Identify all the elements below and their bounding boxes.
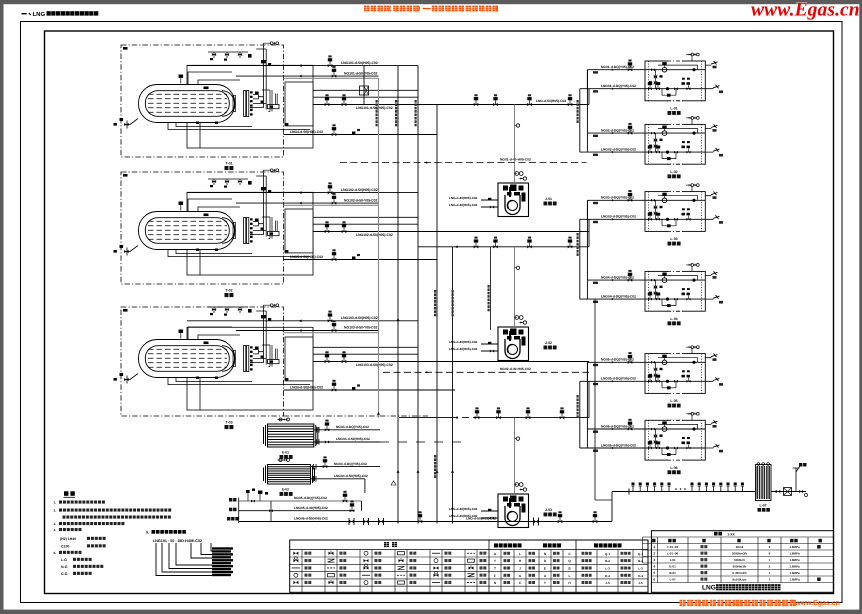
svg-text:E-02: E-02: [282, 488, 289, 492]
svg-text:C100: C100: [61, 544, 69, 548]
svg-text:LNG6-d-50(H05)-C02: LNG6-d-50(H05)-C02: [290, 385, 323, 389]
svg-text:LNG-d-40(H05)-C02: LNG-d-40(H05)-C02: [449, 514, 478, 518]
svg-text:NG02-d-DQ(Y05)-C02: NG02-d-DQ(Y05)-C02: [601, 128, 634, 132]
svg-text:LNG04-d-DQ(Y05)-C02: LNG04-d-DQ(Y05)-C02: [601, 294, 636, 298]
svg-text:LNG06-d-50(H05)-C02: LNG06-d-50(H05)-C02: [294, 517, 328, 521]
svg-text:C-G: C-G: [61, 572, 68, 576]
svg-text:LNG: LNG: [33, 11, 46, 18]
svg-text:L-G: L-G: [61, 558, 67, 562]
svg-text:NG103-d-50-Y05-C02: NG103-d-50-Y05-C02: [344, 326, 377, 330]
svg-text:LNG-d-40(H05)-C02: LNG-d-40(H05)-C02: [449, 196, 478, 200]
svg-text:4.: 4.: [54, 528, 57, 532]
svg-text:2.: 2.: [54, 509, 57, 513]
svg-text:L-01: L-01: [670, 107, 677, 111]
svg-text:Q-1: Q-1: [605, 552, 610, 556]
svg-text:LNG101 - 50 - DID-H406-C02: LNG101 - 50 - DID-H406-C02: [153, 539, 202, 543]
svg-text:L-04: L-04: [670, 317, 677, 321]
svg-text:J-03: J-03: [545, 508, 552, 512]
svg-text:LNG103-d-50(H05)-C02: LNG103-d-50(H05)-C02: [341, 316, 378, 320]
svg-text:T-03: T-03: [225, 421, 232, 425]
svg-text:LNG4-d-50(H05)-C02: LNG4-d-50(H05)-C02: [290, 130, 323, 134]
svg-text:L-3: L-3: [605, 567, 610, 571]
svg-text:L: L: [519, 552, 521, 556]
svg-text:LNG5-d-50(H05)-C02: LNG5-d-50(H05)-C02: [290, 255, 323, 259]
svg-text:J-01: J-01: [670, 558, 676, 562]
svg-text:LNG04-d-50(H05)-C02: LNG04-d-50(H05)-C02: [334, 474, 368, 478]
svg-text:1.6MPa: 1.6MPa: [789, 578, 800, 582]
svg-text:L-07: L-07: [670, 578, 677, 582]
svg-text:LNG06-d-DQ(Y05)-C02: LNG06-d-DQ(Y05)-C02: [601, 443, 636, 447]
svg-text:LNG-d-40(H05)-C02: LNG-d-40(H05)-C02: [449, 507, 478, 511]
svg-text:L: L: [569, 574, 571, 578]
svg-text:LNG101-d-50(H05)-C02: LNG101-d-50(H05)-C02: [341, 61, 378, 65]
svg-text:5.: 5.: [146, 531, 149, 535]
svg-text:L-01~06: L-01~06: [667, 552, 679, 556]
svg-text:LNG-d-40(H05)-C02: LNG-d-40(H05)-C02: [449, 203, 478, 207]
svg-text:4: 4: [653, 565, 655, 569]
svg-text:8x100L/pc: 8x100L/pc: [733, 578, 747, 582]
svg-text:NG01-d-40-H05-C02: NG01-d-40-H05-C02: [500, 157, 531, 161]
svg-text:LNG: LNG: [702, 585, 716, 592]
svg-text:1.6MPa: 1.6MPa: [789, 565, 800, 569]
svg-text:LNG-d-40(H05)-C02: LNG-d-40(H05)-C02: [449, 347, 478, 351]
svg-text:(H2) 1H40: (H2) 1H40: [60, 537, 76, 541]
svg-text:3: 3: [653, 558, 655, 562]
svg-text:www.Egas.cn: www.Egas.cn: [751, 0, 860, 21]
svg-text:1.6MPa: 1.6MPa: [789, 558, 800, 562]
svg-text:LNG02-d-DQ(Y05)-C02: LNG02-d-DQ(Y05)-C02: [601, 147, 636, 151]
svg-text:NG04-d-DQ(Y05)-C02: NG04-d-DQ(Y05)-C02: [601, 275, 634, 279]
svg-text:www.Egas.cn: www.Egas.cn: [794, 600, 840, 607]
svg-text:E-01: E-01: [669, 565, 676, 569]
svg-text:F: F: [494, 574, 496, 578]
svg-text:B-2: B-2: [605, 559, 610, 563]
svg-text:LNG102-d-50(H05)-C02: LNG102-d-50(H05)-C02: [356, 233, 393, 237]
svg-text:NG02-d-40-H05-C02: NG02-d-40-H05-C02: [500, 367, 531, 371]
svg-text:600Nm3/h: 600Nm3/h: [733, 565, 747, 569]
svg-text:L-3: L-3: [638, 567, 643, 571]
svg-text:2: 2: [653, 552, 655, 556]
svg-text:E: E: [544, 567, 546, 571]
svg-text:L-03: L-03: [670, 237, 677, 241]
svg-text:NG06-d-DQ(Y05)-C02: NG06-d-DQ(Y05)-C02: [601, 424, 634, 428]
svg-text:T-01: T-01: [225, 162, 232, 166]
svg-text:1.6MPa: 1.6MPa: [789, 571, 800, 575]
svg-text:LNG03-d-50(H05)-C02: LNG03-d-50(H05)-C02: [336, 437, 370, 441]
svg-text:LNG05-d-40(H05)-C02: LNG05-d-40(H05)-C02: [294, 506, 328, 510]
svg-text:LNG03-d-DQ(Y05)-C02: LNG03-d-DQ(Y05)-C02: [601, 215, 636, 219]
svg-text:LNG05-d-DQ(Y05)-C02: LNG05-d-DQ(Y05)-C02: [601, 377, 636, 381]
svg-text:LNG101-d-50(H05)-C02: LNG101-d-50(H05)-C02: [356, 106, 393, 110]
svg-text:L-05: L-05: [670, 399, 677, 403]
svg-text:b-300m3/h: b-300m3/h: [732, 571, 747, 575]
svg-text:T-01~03: T-01~03: [667, 545, 678, 549]
svg-text:NG03-d-DQ(Y05)-C02: NG03-d-DQ(Y05)-C02: [336, 425, 369, 429]
svg-text:6: 6: [653, 578, 655, 582]
svg-text:J-5: J-5: [638, 581, 643, 585]
svg-text:LNG103-d-50(H05)-C02: LNG103-d-50(H05)-C02: [356, 363, 393, 367]
svg-text:LNG-d-40(H05)-C02: LNG-d-40(H05)-C02: [449, 340, 478, 344]
svg-text:J-01: J-01: [545, 197, 552, 201]
svg-text:H-4: H-4: [638, 574, 643, 578]
svg-text:L-02: L-02: [670, 170, 677, 174]
svg-text:LNG01-d-DQ(Y05)-C02: LNG01-d-DQ(Y05)-C02: [601, 84, 636, 88]
svg-text:L-06: L-06: [670, 466, 677, 470]
svg-text:1: 1: [653, 545, 655, 549]
svg-text:LNG-d-50(H05)-C02: LNG-d-50(H05)-C02: [536, 99, 566, 103]
svg-text:1.6MPa: 1.6MPa: [789, 552, 800, 556]
svg-text:NG03-d-DQ(Y05)-C02: NG03-d-DQ(Y05)-C02: [601, 196, 634, 200]
svg-text:6.: 6.: [54, 551, 57, 555]
svg-text:NG101-d-50-Y05-C02: NG101-d-50-Y05-C02: [344, 71, 377, 75]
svg-text:T-02: T-02: [225, 289, 232, 293]
svg-text:NG01-d-DQ(Y05)-C02: NG01-d-DQ(Y05)-C02: [601, 65, 634, 69]
svg-text:E-01: E-01: [282, 451, 289, 455]
svg-text:H-4: H-4: [605, 574, 610, 578]
svg-text:6000L/h: 6000L/h: [734, 558, 745, 562]
svg-text:3000Nm3/h: 3000Nm3/h: [732, 552, 747, 556]
svg-text:NG05-d-DQ(Y05)-C02: NG05-d-DQ(Y05)-C02: [601, 358, 634, 362]
svg-text:3.: 3.: [54, 522, 57, 526]
svg-text:NG04-d-DQ(Y05)-C02: NG04-d-DQ(Y05)-C02: [334, 462, 367, 466]
svg-text:N-G: N-G: [61, 565, 68, 569]
svg-text:T: T: [494, 567, 496, 571]
svg-text:NG102-d-50-Y05-C02: NG102-d-50-Y05-C02: [344, 198, 377, 202]
svg-text:1-XX: 1-XX: [727, 533, 735, 537]
svg-text:J-5: J-5: [605, 581, 610, 585]
svg-text:L-07: L-07: [760, 504, 767, 508]
svg-text:1.6MPa: 1.6MPa: [789, 545, 800, 549]
svg-text:LNG102-d-50(H05)-C02: LNG102-d-50(H05)-C02: [341, 188, 378, 192]
svg-text:J: J: [519, 567, 521, 571]
svg-text:1.: 1.: [54, 501, 57, 505]
svg-text:NG05-d-DQ(Y05)-C02: NG05-d-DQ(Y05)-C02: [294, 496, 327, 500]
svg-text:5: 5: [653, 571, 655, 575]
svg-text:J-02: J-02: [545, 341, 552, 345]
svg-text:B-01: B-01: [669, 571, 676, 575]
svg-text:60m3: 60m3: [736, 545, 744, 549]
